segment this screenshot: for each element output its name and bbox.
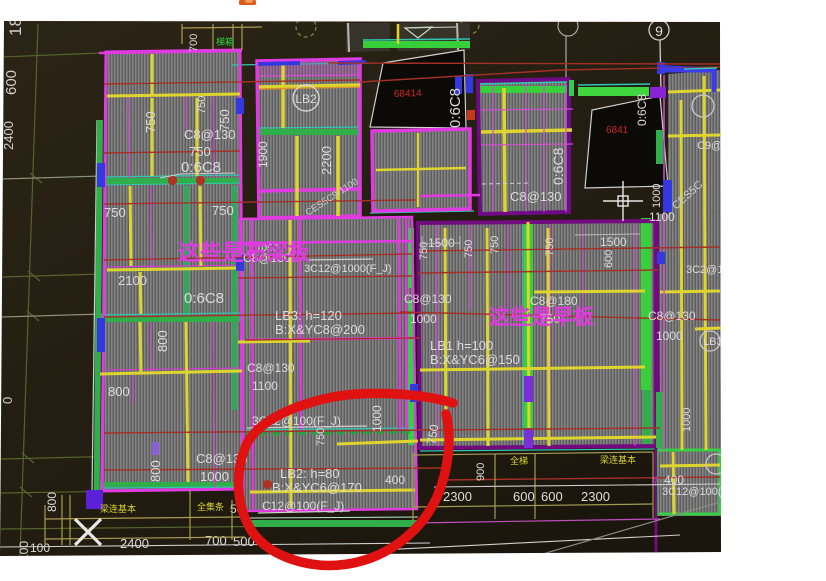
svg-text:700: 700 <box>205 533 227 548</box>
svg-text:C8@130: C8@130 <box>648 309 696 323</box>
svg-text:C8@130: C8@130 <box>404 292 452 306</box>
svg-text:梁连基本: 梁连基本 <box>600 454 636 465</box>
svg-text:2100: 2100 <box>118 273 147 288</box>
svg-text:1000: 1000 <box>410 312 437 326</box>
svg-text:100: 100 <box>30 541 50 555</box>
svg-text:2300: 2300 <box>443 489 472 504</box>
svg-text:0:6C8: 0:6C8 <box>550 147 566 185</box>
svg-text:#: # <box>652 475 659 487</box>
svg-text:B:X&YC6@170: B:X&YC6@170 <box>272 480 362 495</box>
svg-text:1900: 1900 <box>256 141 270 168</box>
svg-text:3C12@100(: 3C12@100( <box>662 486 722 498</box>
svg-text:LB2: h=80: LB2: h=80 <box>280 466 340 481</box>
svg-text:400: 400 <box>385 473 405 487</box>
svg-text:800: 800 <box>148 460 163 482</box>
svg-text:68414: 68414 <box>394 88 423 100</box>
svg-text:梯箱: 梯箱 <box>216 36 234 47</box>
svg-text:750: 750 <box>104 205 126 220</box>
svg-text:1000: 1000 <box>656 329 683 343</box>
svg-text:LB3: h=120: LB3: h=120 <box>275 308 342 323</box>
svg-text:2400: 2400 <box>1 121 16 150</box>
svg-text:600: 600 <box>541 489 563 504</box>
svg-text:750: 750 <box>463 240 475 258</box>
svg-text:B:X&YC8@200: B:X&YC8@200 <box>275 322 365 337</box>
svg-text:1000: 1000 <box>200 469 229 484</box>
svg-text:750: 750 <box>217 109 232 131</box>
svg-text:C8@130: C8@130 <box>247 361 295 375</box>
svg-text:750: 750 <box>143 111 158 133</box>
svg-text:750: 750 <box>544 238 556 256</box>
svg-text:6841: 6841 <box>606 125 629 136</box>
svg-text:1100: 1100 <box>649 210 675 224</box>
svg-text:600: 600 <box>513 489 535 504</box>
svg-text:C8@130: C8@130 <box>510 189 562 204</box>
svg-text:600: 600 <box>3 70 20 95</box>
svg-text:750: 750 <box>189 144 211 159</box>
svg-text:这些是布梁板: 这些是布梁板 <box>178 240 311 265</box>
svg-text:9: 9 <box>655 23 663 39</box>
svg-text:梁连基本: 梁连基本 <box>100 503 136 514</box>
svg-text:3C12@1000(F_J): 3C12@1000(F_J) <box>304 263 392 275</box>
svg-text:0:6C8: 0:6C8 <box>447 88 464 128</box>
svg-text:750: 750 <box>212 203 234 218</box>
svg-text:全梯: 全梯 <box>510 455 528 466</box>
svg-text:0:6C8: 0:6C8 <box>184 290 224 307</box>
svg-text:800: 800 <box>108 384 130 399</box>
svg-text:这些是早板: 这些是早板 <box>489 305 595 329</box>
svg-text:LB1 h=100: LB1 h=100 <box>430 338 493 353</box>
svg-text:750: 750 <box>315 428 327 446</box>
svg-text:900: 900 <box>475 463 487 481</box>
svg-text:750: 750 <box>489 236 501 254</box>
svg-text:2200: 2200 <box>319 146 334 175</box>
svg-text:全集条: 全集条 <box>197 501 224 512</box>
svg-text:0:6C8: 0:6C8 <box>635 94 649 126</box>
svg-text:LB3: LB3 <box>703 336 723 348</box>
svg-text:600: 600 <box>603 250 615 268</box>
svg-text:800: 800 <box>45 492 59 512</box>
svg-text:400: 400 <box>664 473 684 487</box>
svg-text:750: 750 <box>196 96 208 114</box>
svg-text:2300: 2300 <box>581 489 610 504</box>
svg-text:0: 0 <box>0 397 15 404</box>
svg-text:1500: 1500 <box>600 235 627 249</box>
svg-text:1000: 1000 <box>651 184 663 208</box>
svg-text:1000: 1000 <box>370 405 384 432</box>
svg-text:1100: 1100 <box>252 379 278 393</box>
svg-text:LB2: LB2 <box>295 92 317 106</box>
svg-text:700: 700 <box>188 34 200 52</box>
svg-text:800: 800 <box>155 330 170 352</box>
svg-text:B:X&YC6@150: B:X&YC6@150 <box>430 352 520 367</box>
svg-text:1000: 1000 <box>681 408 693 432</box>
